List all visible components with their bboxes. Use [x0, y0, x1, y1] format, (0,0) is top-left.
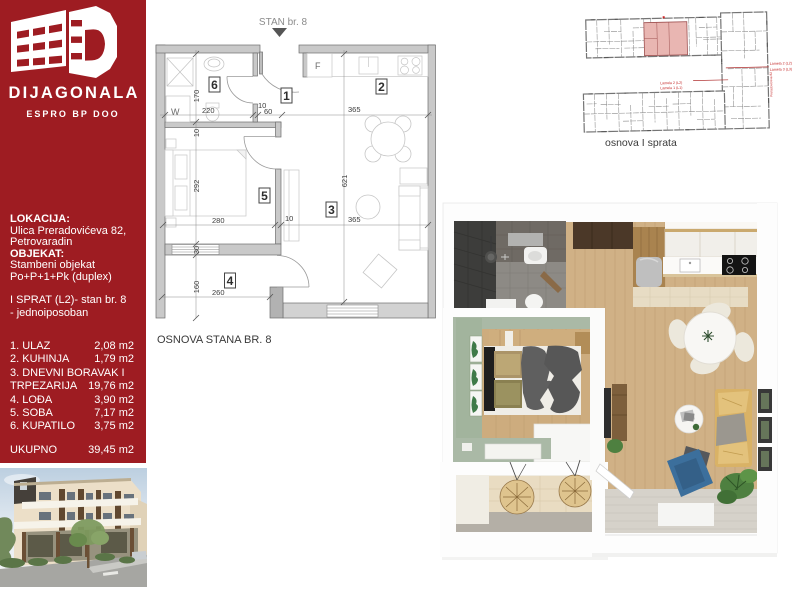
- svg-text:Lamela 3 (L3): Lamela 3 (L3): [770, 67, 792, 72]
- svg-text:365: 365: [348, 105, 361, 114]
- svg-text:260: 260: [212, 288, 225, 297]
- svg-text:220: 220: [202, 106, 215, 115]
- svg-text:W: W: [171, 107, 180, 117]
- svg-text:30: 30: [192, 246, 201, 254]
- svg-text:6: 6: [211, 78, 218, 92]
- svg-text:280: 280: [212, 216, 225, 225]
- svg-text:160: 160: [192, 281, 201, 294]
- svg-text:Lamela 2 (L2): Lamela 2 (L2): [770, 61, 792, 66]
- svg-text:F: F: [315, 61, 321, 71]
- svg-text:1: 1: [283, 89, 290, 103]
- svg-text:10: 10: [192, 129, 201, 137]
- svg-text:621: 621: [340, 175, 349, 188]
- svg-text:292: 292: [192, 180, 201, 193]
- svg-text:Lamela 2 (L2): Lamela 2 (L2): [660, 81, 682, 86]
- svg-text:5: 5: [261, 189, 268, 203]
- svg-text:2: 2: [378, 80, 385, 94]
- svg-text:365: 365: [348, 215, 361, 224]
- svg-text:4: 4: [227, 274, 234, 288]
- svg-text:STAN br. 8: STAN br. 8: [259, 17, 308, 28]
- svg-text:Preradoviceva 82: Preradoviceva 82: [769, 72, 774, 97]
- svg-text:170: 170: [192, 90, 201, 103]
- svg-text:3: 3: [328, 203, 335, 217]
- svg-text:10: 10: [285, 214, 293, 223]
- svg-text:Lamela 1 (L1): Lamela 1 (L1): [660, 86, 682, 91]
- svg-text:60: 60: [264, 107, 272, 116]
